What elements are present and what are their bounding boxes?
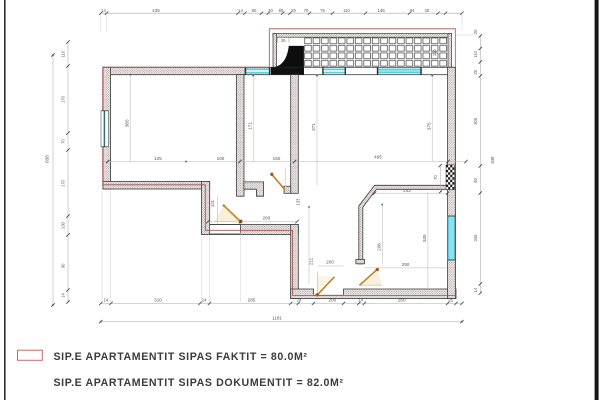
svg-text:25: 25 (425, 8, 430, 13)
svg-text:838: 838 (45, 155, 50, 163)
svg-text:90: 90 (473, 178, 478, 183)
svg-text:838: 838 (490, 156, 495, 164)
svg-text:14: 14 (473, 287, 478, 292)
svg-text:SIP.E APARTAMENTIT SIPAS DOKUM: SIP.E APARTAMENTIT SIPAS DOKUMENTIT = 82… (54, 377, 344, 389)
svg-text:495: 495 (374, 155, 382, 160)
svg-text:20: 20 (268, 8, 273, 13)
svg-text:130: 130 (60, 221, 65, 229)
svg-text:25: 25 (473, 69, 478, 74)
svg-text:25: 25 (291, 8, 296, 13)
svg-text:121: 121 (210, 199, 215, 207)
svg-text:345: 345 (422, 234, 427, 242)
svg-text:14: 14 (238, 8, 243, 13)
svg-text:305: 305 (473, 117, 478, 125)
svg-text:70: 70 (304, 8, 309, 13)
svg-text:365: 365 (124, 119, 129, 127)
svg-text:1181: 1181 (272, 316, 282, 321)
svg-text:110: 110 (343, 8, 350, 13)
svg-text:206: 206 (377, 243, 382, 251)
svg-text:250: 250 (402, 262, 410, 267)
svg-text:110: 110 (432, 49, 437, 56)
svg-text:243: 243 (403, 188, 411, 193)
svg-text:200: 200 (262, 216, 270, 221)
svg-text:133: 133 (296, 198, 301, 206)
svg-text:94: 94 (410, 8, 415, 13)
svg-text:375: 375 (426, 122, 431, 130)
svg-text:110: 110 (60, 50, 65, 57)
svg-text:75: 75 (320, 8, 325, 13)
svg-text:60: 60 (252, 8, 257, 13)
svg-text:200: 200 (326, 260, 334, 265)
svg-text:345: 345 (473, 234, 478, 242)
svg-text:211: 211 (308, 257, 313, 265)
svg-text:171: 171 (247, 122, 252, 130)
svg-text:14: 14 (104, 298, 109, 303)
svg-text:125: 125 (154, 156, 162, 161)
svg-text:170: 170 (60, 95, 65, 103)
svg-text:25: 25 (473, 29, 478, 34)
svg-text:100: 100 (217, 156, 225, 161)
svg-text:SIP.E APARTAMENTIT SIPAS FAKTI: SIP.E APARTAMENTIT SIPAS FAKTIT = 80.0M² (54, 351, 308, 363)
svg-text:24: 24 (202, 298, 207, 303)
svg-text:285: 285 (248, 298, 256, 303)
svg-text:65: 65 (279, 8, 284, 13)
svg-text:90: 90 (60, 263, 65, 268)
svg-text:310: 310 (154, 298, 162, 303)
svg-text:26: 26 (281, 38, 286, 43)
svg-text:70: 70 (60, 139, 65, 144)
svg-text:435: 435 (152, 8, 160, 13)
svg-text:110: 110 (473, 50, 478, 57)
svg-text:371: 371 (311, 123, 316, 131)
svg-text:14: 14 (101, 8, 106, 13)
svg-text:160: 160 (273, 156, 281, 161)
svg-text:146: 146 (377, 8, 385, 13)
svg-text:70: 70 (433, 175, 438, 180)
svg-text:14: 14 (60, 293, 65, 298)
svg-text:170: 170 (60, 179, 65, 187)
